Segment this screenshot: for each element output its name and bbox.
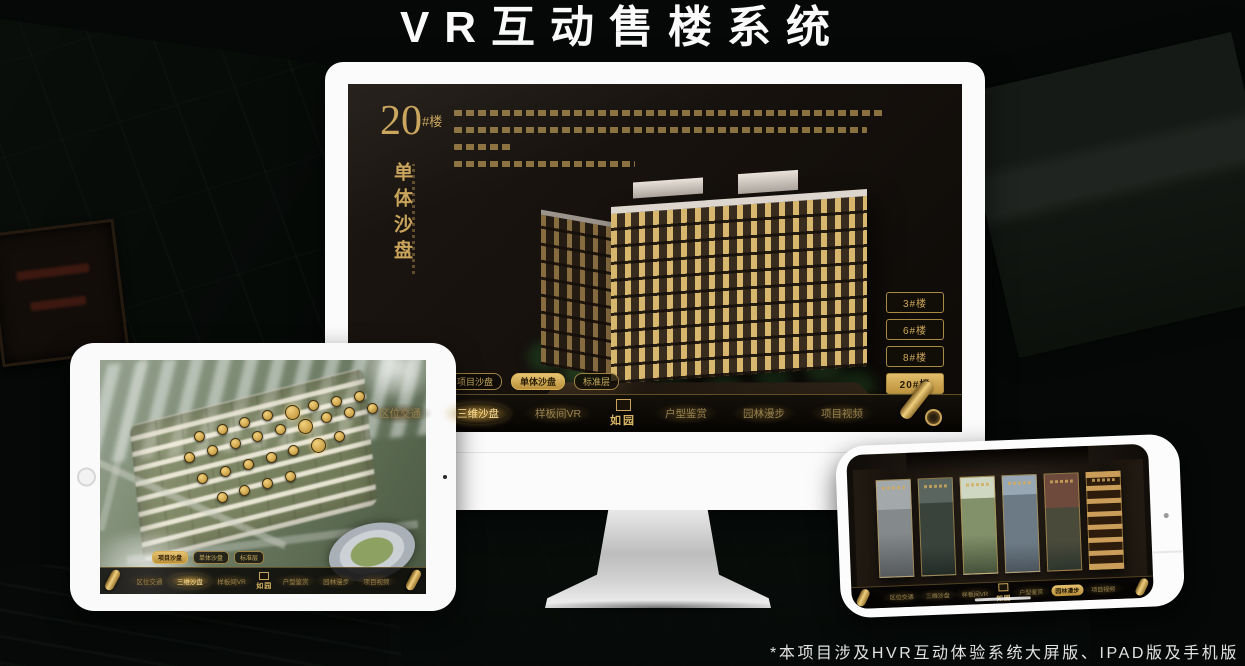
building-marker[interactable]	[217, 424, 228, 435]
view-tab[interactable]: 单体沙盘	[193, 551, 229, 564]
nav-item[interactable]: 三维沙盘	[450, 404, 506, 423]
plaque-engraving	[30, 296, 87, 312]
plaque-engraving	[16, 263, 90, 281]
nav-item[interactable]: 园林漫步	[319, 575, 353, 587]
nav-item[interactable]: 样板间VR	[528, 404, 588, 423]
view-tab[interactable]: 标准层	[234, 551, 264, 564]
nav-item[interactable]: 项目视频	[814, 404, 870, 423]
building-marker[interactable]	[266, 452, 277, 463]
tablet-home-button[interactable]	[77, 468, 96, 487]
background-photo-collage	[958, 32, 1245, 358]
gallery-panel-autumn-courtyard[interactable]	[1044, 472, 1083, 571]
nav-item[interactable]: 三维沙盘	[173, 575, 207, 587]
nav-item[interactable]: 户型鉴赏	[279, 575, 313, 587]
gallery-panel-garden-view[interactable]	[960, 476, 999, 575]
view-tab[interactable]: 项目沙盘	[152, 551, 188, 564]
promo-canvas: VR互动售楼系统 20#楼 单体沙盘 3#楼6#楼8#	[0, 0, 1245, 666]
phone-device: 区位交通三维沙盘样板间VR如园户型鉴赏园林漫步项目视频	[835, 433, 1185, 618]
nav-item[interactable]: 区位交通	[885, 591, 917, 603]
page-title: VR互动售楼系统	[0, 2, 1245, 54]
footnote-text: *本项目涉及HVR互动体验系统大屏版、IPAD版及手机版	[770, 639, 1239, 663]
building-marker[interactable]	[207, 445, 218, 456]
building-marker[interactable]	[334, 431, 345, 442]
building-marker[interactable]	[184, 452, 195, 463]
panel-caption	[1092, 478, 1115, 482]
building-marker[interactable]	[311, 438, 326, 453]
monitor-stand	[545, 510, 771, 608]
panel-caption	[1050, 480, 1073, 484]
nav-item[interactable]: 项目视频	[1087, 583, 1119, 595]
nav-item[interactable]: 区位交通	[372, 404, 428, 423]
phone-antenna-line	[1153, 550, 1183, 553]
building-marker[interactable]	[197, 473, 208, 484]
nav-item[interactable]: 三维沙盘	[922, 589, 954, 601]
brand-logo-label: 如园	[256, 581, 272, 591]
building-marker[interactable]	[194, 431, 205, 442]
gallery-panel-residential-tower[interactable]	[1002, 474, 1041, 573]
nav-item[interactable]: 户型鉴赏	[658, 404, 714, 423]
monitor-stand-shadow	[520, 600, 800, 616]
view-tab-group: 项目沙盘单体沙盘标准层	[152, 551, 264, 564]
gallery-panel-wine-cellar[interactable]	[1085, 471, 1124, 570]
building-marker[interactable]	[217, 492, 228, 503]
tablet-screen: 项目沙盘单体沙盘标准层 区位交通三维沙盘样板间VR如园户型鉴赏园林漫步项目视频	[100, 360, 426, 594]
nav-item[interactable]: 园林漫步	[1051, 584, 1083, 596]
panel-caption	[882, 486, 905, 490]
brand-logo[interactable]: 如园	[256, 572, 272, 591]
building-marker[interactable]	[331, 396, 342, 407]
building-marker[interactable]	[262, 478, 273, 489]
nav-item[interactable]: 户型鉴赏	[1015, 586, 1047, 598]
tablet-device: 项目沙盘单体沙盘标准层 区位交通三维沙盘样板间VR如园户型鉴赏园林漫步项目视频	[70, 343, 456, 611]
building-marker[interactable]	[285, 471, 296, 482]
nav-item[interactable]: 区位交通	[132, 575, 166, 587]
brand-logo-icon	[259, 572, 269, 580]
nav-item[interactable]: 样板间VR	[958, 588, 993, 600]
gallery-panel-club-lounge[interactable]	[918, 477, 957, 576]
main-nav-bar: 区位交通三维沙盘样板间VR如园户型鉴赏园林漫步项目视频	[100, 567, 426, 594]
gallery-panel-stone-gate[interactable]	[876, 479, 915, 578]
building-marker[interactable]	[354, 391, 365, 402]
nav-item[interactable]: 样板间VR	[213, 575, 250, 587]
nav-item[interactable]: 园林漫步	[736, 404, 792, 423]
brand-logo-icon	[998, 583, 1008, 591]
phone-camera-icon	[1164, 513, 1169, 518]
nav-item[interactable]: 项目视频	[359, 575, 393, 587]
building-marker[interactable]	[220, 466, 231, 477]
building-marker[interactable]	[230, 438, 241, 449]
panel-caption	[1008, 481, 1031, 485]
panel-caption	[924, 484, 947, 488]
tablet-camera-icon	[443, 475, 447, 479]
phone-screen: 区位交通三维沙盘样板间VR如园户型鉴赏园林漫步项目视频	[846, 444, 1154, 609]
panel-caption	[966, 483, 989, 487]
building-marker[interactable]	[243, 459, 254, 470]
scene-gallery	[876, 471, 1125, 578]
building-marker[interactable]	[262, 410, 273, 421]
